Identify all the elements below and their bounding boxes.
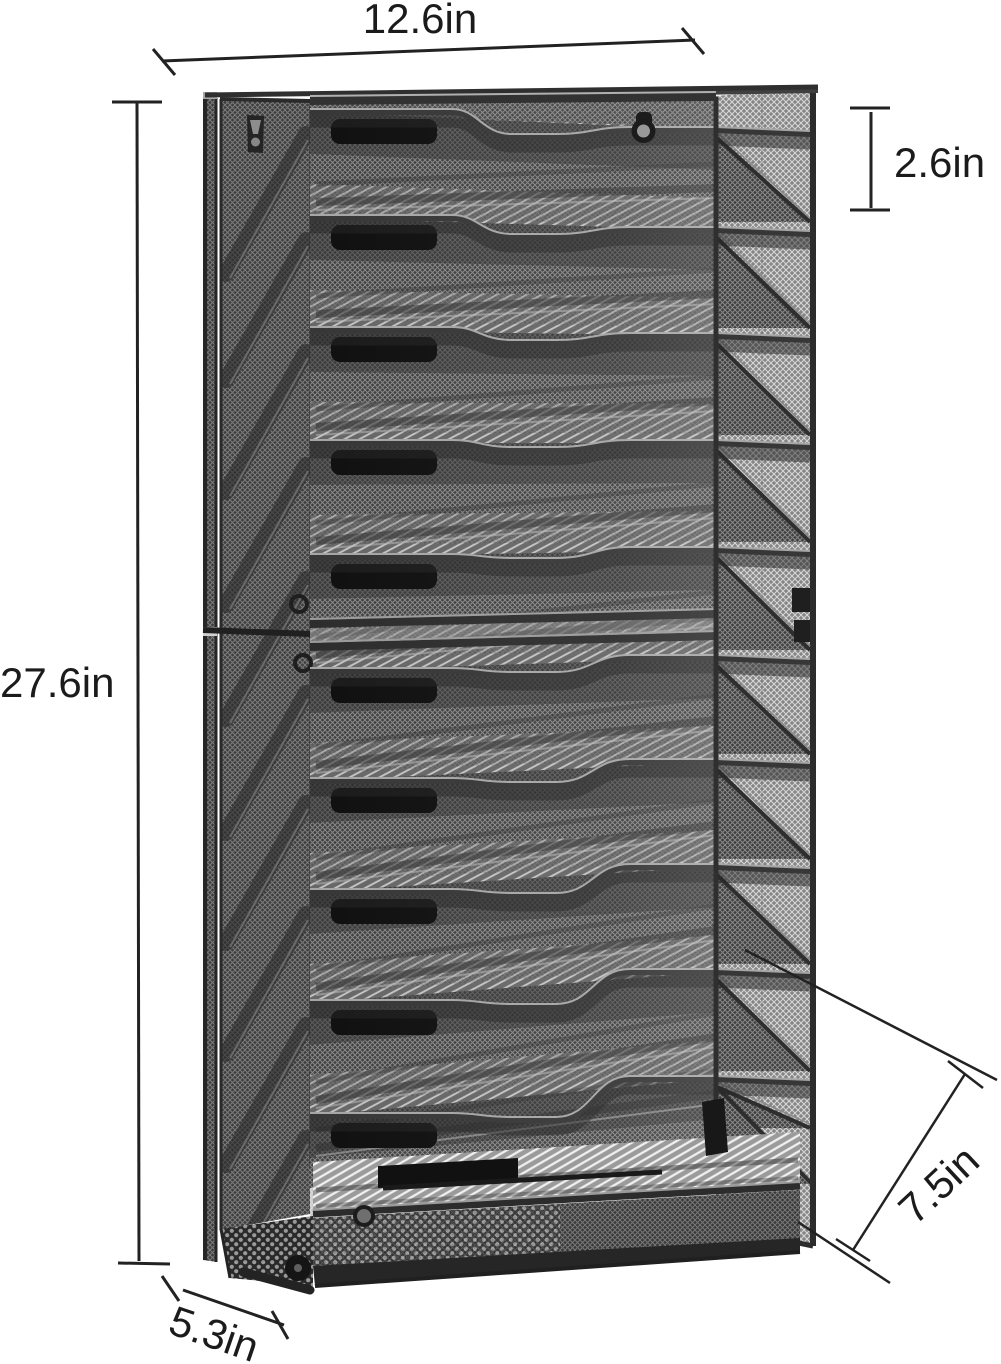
svg-text:12.6in: 12.6in bbox=[363, 0, 477, 42]
svg-text:27.6in: 27.6in bbox=[0, 659, 114, 706]
svg-text:2.6in: 2.6in bbox=[894, 139, 985, 186]
